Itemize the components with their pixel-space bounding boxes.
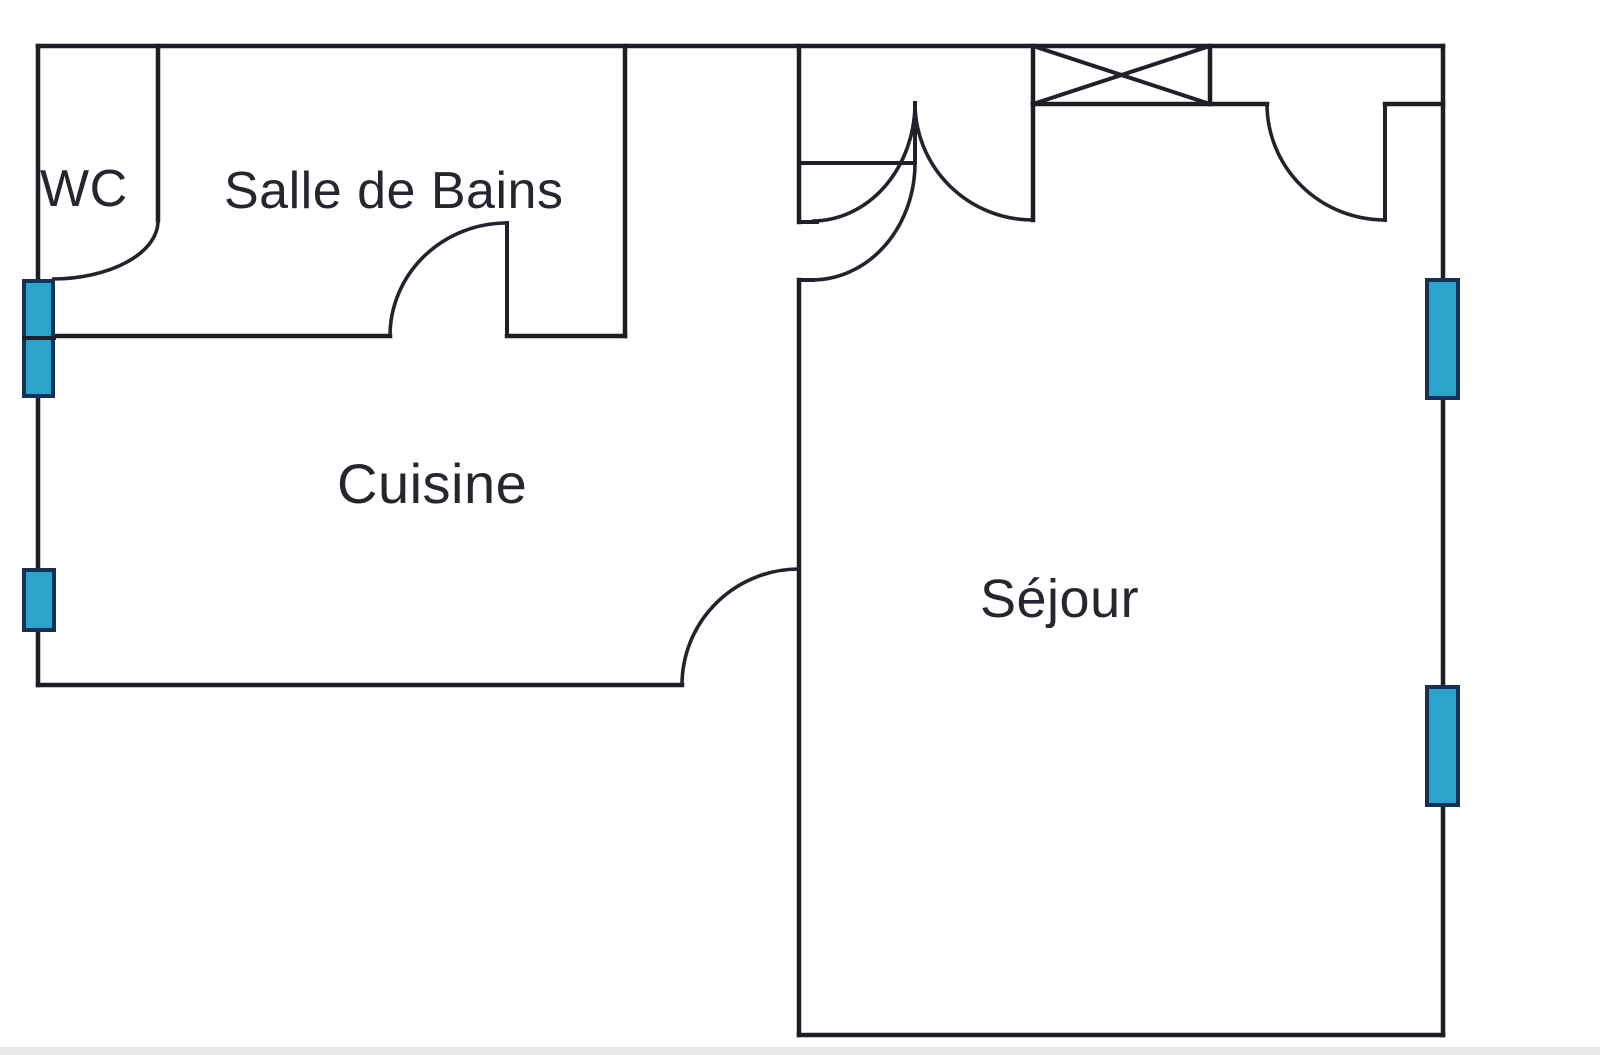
window-right-upper bbox=[1427, 280, 1458, 398]
floor-plan-drawing bbox=[0, 0, 1600, 1055]
window-left-lower bbox=[24, 570, 54, 630]
scan-edge-strip bbox=[0, 1047, 1600, 1055]
room-label-salle-de-bains: Salle de Bains bbox=[224, 165, 563, 217]
room-label-wc: WC bbox=[40, 163, 128, 215]
floor-plan: WC Salle de Bains Cuisine Séjour bbox=[0, 0, 1600, 1055]
door-arc-wc bbox=[52, 220, 158, 279]
room-label-cuisine: Cuisine bbox=[337, 456, 527, 512]
window-right-lower bbox=[1427, 687, 1458, 805]
door-arc-bath bbox=[390, 223, 507, 336]
door-arc-top-right bbox=[1267, 104, 1385, 220]
room-label-sejour: Séjour bbox=[980, 572, 1139, 626]
door-arc-entry-right bbox=[915, 103, 1033, 220]
door-arc-cuisine bbox=[682, 569, 799, 685]
